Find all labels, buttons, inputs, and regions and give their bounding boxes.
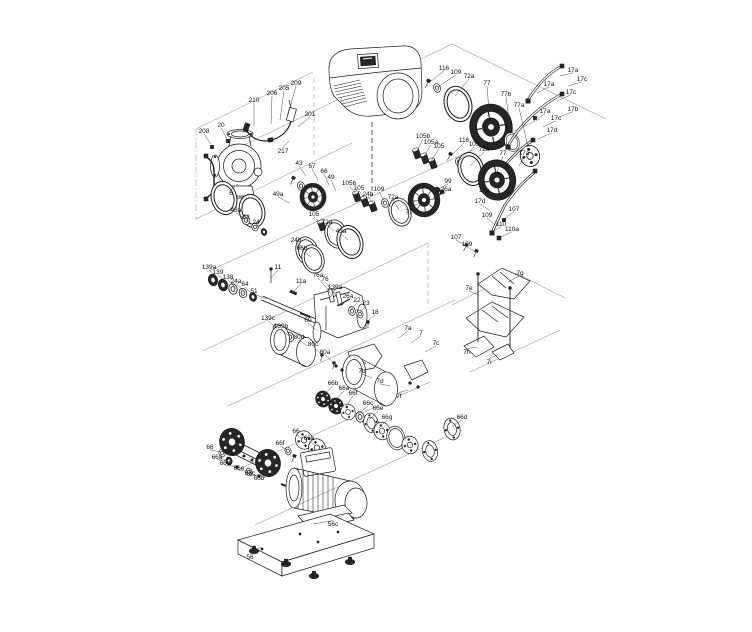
svg-text:43: 43 xyxy=(295,160,303,167)
callout-17d: 17d xyxy=(475,198,489,210)
svg-text:109: 109 xyxy=(451,69,462,76)
callout-109: 109 xyxy=(482,212,495,225)
callout-18: 18 xyxy=(368,309,379,321)
callout-7i: 7i xyxy=(486,355,497,366)
svg-text:43a: 43a xyxy=(336,228,347,235)
svg-text:66a: 66a xyxy=(304,435,315,442)
exploded-parts-diagram: 20820210206205209201217611610972a7777b77… xyxy=(0,0,752,632)
svg-text:109: 109 xyxy=(482,212,493,219)
callout-107: 107 xyxy=(504,206,520,219)
svg-text:43a: 43a xyxy=(231,207,242,214)
svg-text:24b: 24b xyxy=(291,237,302,244)
svg-text:76: 76 xyxy=(321,276,329,283)
svg-text:22: 22 xyxy=(353,297,361,304)
svg-text:7c: 7c xyxy=(433,340,441,347)
svg-text:7h: 7h xyxy=(463,349,471,356)
svg-text:17a: 17a xyxy=(568,67,579,74)
svg-text:17b: 17b xyxy=(568,106,579,113)
svg-text:77: 77 xyxy=(499,150,507,157)
svg-text:66e: 66e xyxy=(373,405,384,412)
svg-text:80a: 80a xyxy=(320,349,331,356)
svg-text:62: 62 xyxy=(242,214,250,221)
svg-text:11a: 11a xyxy=(296,278,307,285)
svg-text:24b: 24b xyxy=(363,191,374,198)
callout-49a: 49a xyxy=(273,191,289,203)
callout-7c: 7c xyxy=(425,340,440,352)
svg-text:80d: 80d xyxy=(294,334,305,341)
svg-text:217: 217 xyxy=(278,148,289,155)
svg-text:18: 18 xyxy=(371,309,379,316)
callout-17b: 17b xyxy=(559,106,579,117)
coupling-guards xyxy=(464,268,530,360)
svg-text:210: 210 xyxy=(249,97,260,104)
svg-text:26a: 26a xyxy=(441,186,452,193)
svg-text:209: 209 xyxy=(291,80,302,87)
svg-text:201: 201 xyxy=(305,111,316,118)
svg-text:139c: 139c xyxy=(261,315,276,322)
svg-text:20: 20 xyxy=(217,122,225,129)
svg-text:7g: 7g xyxy=(516,270,524,277)
svg-text:7b: 7b xyxy=(358,368,366,375)
svg-text:66f: 66f xyxy=(275,440,284,447)
callout-67: 67 xyxy=(308,163,318,180)
svg-text:60: 60 xyxy=(304,317,312,324)
svg-text:205: 205 xyxy=(279,85,290,92)
svg-text:6: 6 xyxy=(229,190,233,197)
svg-text:77b: 77b xyxy=(501,91,512,98)
callout-20: 20 xyxy=(217,122,227,139)
svg-text:23: 23 xyxy=(362,300,370,307)
svg-text:66b: 66b xyxy=(297,245,308,252)
svg-text:17d: 17d xyxy=(475,198,486,205)
svg-text:67: 67 xyxy=(308,163,316,170)
svg-text:72a: 72a xyxy=(479,146,490,153)
svg-text:66g: 66g xyxy=(382,414,393,421)
svg-text:7e: 7e xyxy=(465,285,473,292)
svg-text:109: 109 xyxy=(462,241,473,248)
svg-text:17a: 17a xyxy=(544,81,555,88)
callout-201: 201 xyxy=(298,111,316,127)
sensor-cable-assembly xyxy=(243,100,297,142)
svg-text:17c: 17c xyxy=(551,115,562,122)
svg-text:49: 49 xyxy=(327,174,335,181)
svg-text:17a: 17a xyxy=(519,150,530,157)
drive-head-unit xyxy=(329,46,422,196)
callout-66b: 66b xyxy=(254,475,266,482)
exploded-parts-diagram-page: 20820210206205209201217611610972a7777b77… xyxy=(0,0,752,632)
svg-text:66: 66 xyxy=(292,428,300,435)
svg-text:66f: 66f xyxy=(348,390,357,397)
svg-text:17a: 17a xyxy=(540,108,551,115)
svg-text:17d: 17d xyxy=(547,127,558,134)
seal-row-middle xyxy=(352,181,444,229)
callout-210: 210 xyxy=(249,97,260,126)
svg-text:26a: 26a xyxy=(343,293,354,300)
svg-text:72a: 72a xyxy=(322,219,333,226)
svg-text:77: 77 xyxy=(483,80,491,87)
svg-text:7: 7 xyxy=(419,330,423,337)
svg-text:110a: 110a xyxy=(505,226,519,233)
callout-11: 11 xyxy=(271,264,282,278)
svg-text:105: 105 xyxy=(434,143,445,150)
callout-17d: 17d xyxy=(538,127,558,139)
svg-text:109: 109 xyxy=(374,186,385,193)
callout-17a: 17a xyxy=(560,67,579,76)
svg-text:72a: 72a xyxy=(388,194,399,201)
callout-49: 49 xyxy=(327,174,336,191)
svg-text:107: 107 xyxy=(451,234,462,241)
svg-text:139b: 139b xyxy=(274,323,289,330)
svg-text:7a: 7a xyxy=(404,325,412,332)
svg-text:80c: 80c xyxy=(308,341,319,348)
svg-text:51: 51 xyxy=(250,288,258,295)
callout-116: 116 xyxy=(430,65,450,82)
svg-text:24a: 24a xyxy=(231,278,242,285)
callout-43: 43 xyxy=(295,160,306,176)
svg-text:72a: 72a xyxy=(464,73,475,80)
svg-text:66e: 66e xyxy=(234,465,245,472)
svg-text:66d: 66d xyxy=(457,414,468,421)
svg-text:7d: 7d xyxy=(376,378,384,385)
svg-text:17c: 17c xyxy=(479,187,490,194)
svg-text:77a: 77a xyxy=(514,102,525,109)
svg-text:24: 24 xyxy=(252,219,260,226)
callout-7e: 7e xyxy=(465,285,479,295)
svg-text:206: 206 xyxy=(267,90,278,97)
callout-17c: 17c xyxy=(543,115,562,127)
callout-105: 105 xyxy=(309,211,321,224)
callout-66b: 66b xyxy=(323,380,339,396)
svg-text:11: 11 xyxy=(275,264,282,271)
svg-text:66: 66 xyxy=(206,444,214,451)
callout-11a: 11a xyxy=(293,278,307,292)
callout-217: 217 xyxy=(278,141,289,155)
svg-text:66b: 66b xyxy=(328,380,339,387)
callout-7a: 7a xyxy=(399,325,412,338)
svg-text:107: 107 xyxy=(509,206,520,213)
svg-text:139a: 139a xyxy=(328,284,343,291)
svg-text:49a: 49a xyxy=(273,191,284,198)
svg-text:77: 77 xyxy=(405,209,413,216)
svg-text:208: 208 xyxy=(199,128,210,135)
svg-text:105: 105 xyxy=(309,211,320,218)
callout-208: 208 xyxy=(199,128,211,144)
svg-text:64: 64 xyxy=(241,281,249,288)
svg-text:56: 56 xyxy=(246,554,254,561)
svg-text:66b: 66b xyxy=(254,475,265,482)
svg-text:66d: 66d xyxy=(220,460,231,467)
callout-66a: 66a xyxy=(334,385,350,402)
svg-text:7i: 7i xyxy=(486,359,491,366)
callout-17c: 17c xyxy=(568,76,588,86)
svg-text:99: 99 xyxy=(444,178,452,185)
callout-206: 206 xyxy=(267,90,278,124)
svg-text:116: 116 xyxy=(439,65,450,72)
svg-text:17c: 17c xyxy=(577,76,588,83)
svg-text:17c: 17c xyxy=(566,89,577,96)
callout-7: 7 xyxy=(411,330,423,343)
svg-text:7f: 7f xyxy=(396,393,402,400)
svg-text:56c: 56c xyxy=(328,521,339,528)
